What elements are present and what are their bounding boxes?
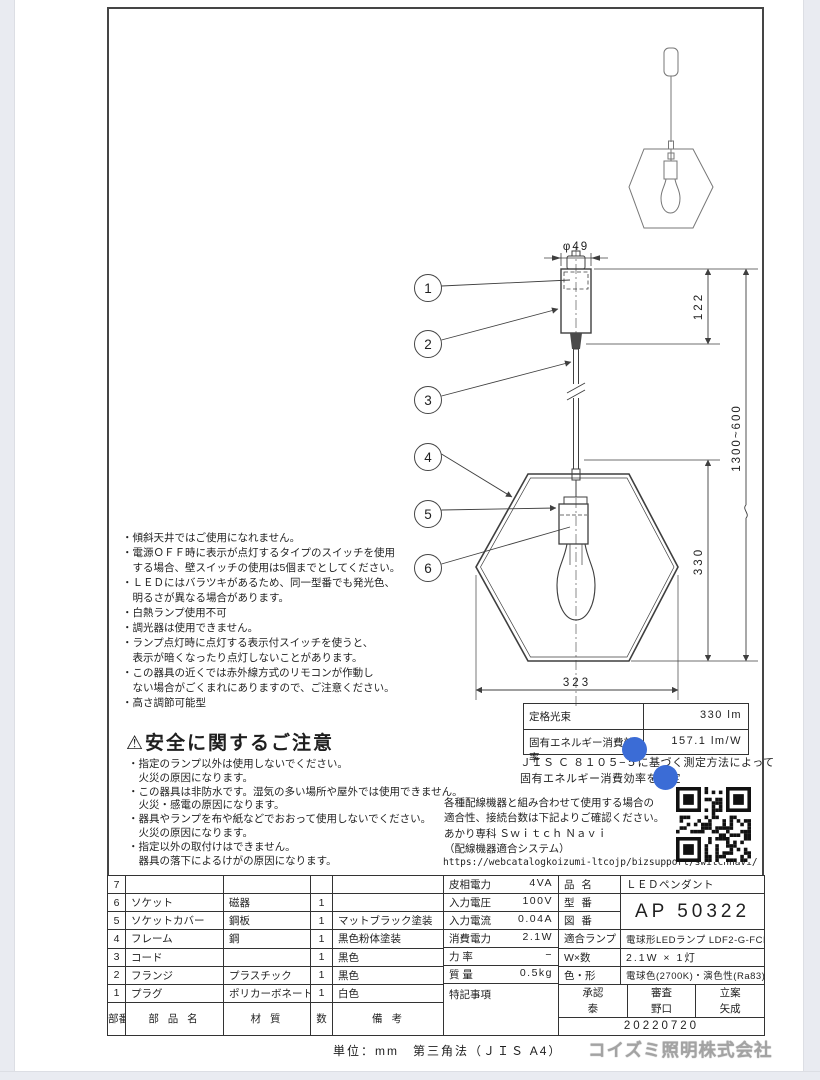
dim-1300-600-label: 1300~600 xyxy=(731,404,743,472)
table-row: 消費電力2.1W xyxy=(444,930,559,948)
note-line: ない場合がごくまれにありますので、ご注意ください。 xyxy=(122,681,400,696)
part-name xyxy=(126,876,224,894)
wiring-line: 各種配線機器と組み合わせて使用する場合の xyxy=(444,796,664,811)
apparent-power-value: 4VA xyxy=(529,877,553,892)
qr-code xyxy=(676,787,751,862)
callout-6: 6 xyxy=(424,561,432,576)
page-margin-left xyxy=(0,0,15,1080)
part-note: 黒色 xyxy=(333,966,445,984)
draft-col: 立案 矢成 xyxy=(695,985,764,1017)
table-row: 定格光束 330 lm xyxy=(524,704,748,729)
callout-2: 2 xyxy=(424,337,432,352)
table-row: 1 プラグ ポリカーボネート 1 白色 xyxy=(108,984,445,1002)
part-name: ソケット xyxy=(126,894,224,912)
part-name: コード xyxy=(126,948,224,966)
part-qty: 1 xyxy=(311,894,333,912)
part-material: ポリカーボネート xyxy=(224,984,311,1002)
warning-icon: ⚠ xyxy=(126,733,145,754)
approval-block: 承認 泰 審査 野口 立案 矢成 xyxy=(559,985,764,1017)
safety-line: 火災の原因になります。 xyxy=(128,772,463,786)
input-voltage-value: 100V xyxy=(522,895,553,910)
dim-phi49-label: φ49 xyxy=(563,241,589,253)
safety-line: ・この器具は非防水です。湿気の多い場所や屋外では使用できません。 xyxy=(128,786,463,800)
part-no: 1 xyxy=(108,984,126,1002)
safety-line: 器具の落下によるけがの原因になります。 xyxy=(128,855,463,869)
note-line: 明るさが異なる場合があります。 xyxy=(122,591,400,606)
table-row: 品 名 ＬＥＤペンダント xyxy=(559,876,765,894)
dim-122-label: 122 xyxy=(693,292,705,320)
electrical-spec-table: 皮相電力4VA 入力電圧100V 入力電流0.04A 消費電力2.1W 力 率−… xyxy=(443,875,559,1036)
part-no: 7 xyxy=(108,876,126,894)
part-no: 5 xyxy=(108,912,126,930)
part-material: プラスチック xyxy=(224,966,311,984)
jis-note-line2: 固有エネルギー消費効率を測定 xyxy=(520,772,775,788)
mass-value: 0.5kg xyxy=(520,967,553,982)
power-factor-value: − xyxy=(545,949,553,964)
usage-notes: ・傾斜天井ではご使用になれません。 ・電源ＯＦＦ時に表示が点灯するタイプのスイッ… xyxy=(122,531,400,711)
wiring-line: あかり専科 Ｓｗｉｔｃｈ Ｎａｖｉ xyxy=(444,827,664,842)
safety-notes: ・指定のランプ以外は使用しないでください。 火災の原因になります。 ・この器具は… xyxy=(128,758,463,868)
dim-323-label: 323 xyxy=(563,677,591,689)
note-line: ・ＬＥＤにはバラツキがあるため、同一型番でも発光色、 xyxy=(122,576,400,591)
part-material xyxy=(224,876,311,894)
note-line: ・ランプ点灯時に点灯する表示付スイッチを使うと、 xyxy=(122,636,400,651)
table-row: 7 xyxy=(108,876,445,894)
product-name-value: ＬＥＤペンダント xyxy=(621,876,765,894)
power-factor-label: 力 率 xyxy=(449,949,473,964)
note-line: ・調光器は使用できません。 xyxy=(122,621,400,636)
drawing-no-label: 図 番 xyxy=(559,912,621,930)
spec-sheet-page: 1 2 3 4 5 6 φ49 122 1300~600 330 323 ・傾斜… xyxy=(0,0,820,1080)
part-note xyxy=(333,894,445,912)
lamp-label: 適合ランプ xyxy=(559,930,621,948)
model-label: 型 番 xyxy=(559,894,621,912)
table-row: 5 ソケットカバー 鋼板 1 マットブラック塗装 xyxy=(108,912,445,930)
review-role: 審査 xyxy=(651,985,672,1000)
lamp-value: 電球形LEDランプ LDF2-G-FCK xyxy=(621,930,765,948)
table-row: 4 フレーム 鋼 1 黒色粉体塗装 xyxy=(108,930,445,948)
power-consumption-label: 消費電力 xyxy=(449,931,491,946)
note-line: ・傾斜天井ではご使用になれません。 xyxy=(122,531,400,546)
input-voltage-label: 入力電圧 xyxy=(449,895,491,910)
input-current-label: 入力電流 xyxy=(449,913,491,928)
dim-330-label: 330 xyxy=(693,547,705,575)
draft-name: 矢成 xyxy=(720,1001,741,1016)
table-row: 6 ソケット 磁器 1 xyxy=(108,894,445,912)
pendant-dimension-drawing xyxy=(442,246,759,708)
safety-line: 火災の原因になります。 xyxy=(128,827,463,841)
table-row: 力 率− xyxy=(444,948,559,966)
approval-name: 泰 xyxy=(588,1001,599,1016)
apparent-power-label: 皮相電力 xyxy=(449,877,491,892)
table-row: W×数 2.1W × 1灯 xyxy=(559,948,765,966)
safety-section-title: ⚠安全に関するご注意 xyxy=(126,728,334,755)
callout-4: 4 xyxy=(424,450,432,465)
approval-col: 承認 泰 xyxy=(559,985,627,1017)
part-qty: 1 xyxy=(311,984,333,1002)
part-qty xyxy=(311,876,333,894)
table-row: 入力電流0.04A xyxy=(444,912,559,930)
part-no: 2 xyxy=(108,966,126,984)
note-line: ・高さ調節可能型 xyxy=(122,696,400,711)
wiring-compatibility-note: 各種配線機器と組み合わせて使用する場合の 適合性、接続台数は下記よりご確認くださ… xyxy=(444,796,664,858)
part-no: 4 xyxy=(108,930,126,948)
product-info-table: 品 名 ＬＥＤペンダント 型 番 AP 50322 図 番 適合ランプ 電球形L… xyxy=(558,875,765,1036)
jis-measurement-note: ＪＩＳ Ｃ ８１０５−５に基づく測定方法によって 固有エネルギー消費効率を測定 xyxy=(520,756,775,787)
header-material: 材 質 xyxy=(224,1002,311,1035)
review-name: 野口 xyxy=(651,1001,672,1016)
part-name: ソケットカバー xyxy=(126,912,224,930)
draft-role: 立案 xyxy=(720,985,741,1000)
part-note: 黒色粉体塗装 xyxy=(333,930,445,948)
header-part-name: 部 品 名 xyxy=(126,1002,224,1035)
wattage-value: 2.1W × 1灯 xyxy=(621,948,765,966)
wattage-label: W×数 xyxy=(559,948,621,966)
table-row: 色・形 電球色(2700K)・演色性(Ra83) xyxy=(559,966,765,984)
header-qty: 数 xyxy=(311,1002,333,1035)
part-material xyxy=(224,948,311,966)
safety-line: 火災・感電の原因になります。 xyxy=(128,799,463,813)
power-consumption-value: 2.1W xyxy=(522,931,553,946)
safety-line: ・指定以外の取付けはできません。 xyxy=(128,841,463,855)
release-date: 20220720 xyxy=(559,1017,765,1035)
callout-1: 1 xyxy=(424,281,432,296)
parts-table: 7 6 ソケット 磁器 1 5 ソケットカバー 鋼板 1 マットブラック塗装 4… xyxy=(107,875,445,1036)
part-name: フレーム xyxy=(126,930,224,948)
annotation-dot xyxy=(653,765,678,790)
jis-note-line1: ＪＩＳ Ｃ ８１０５−５に基づく測定方法によって xyxy=(520,756,775,772)
part-note: 白色 xyxy=(333,984,445,1002)
table-header-row: 部番 部 品 名 材 質 数 備 考 xyxy=(108,1002,445,1035)
note-line: ・電源ＯＦＦ時に表示が点灯するタイプのスイッチを使用 xyxy=(122,546,400,561)
table-row: 3 コード 1 黒色 xyxy=(108,948,445,966)
part-no: 3 xyxy=(108,948,126,966)
part-qty: 1 xyxy=(311,912,333,930)
safety-title-text: 安全に関するご注意 xyxy=(145,733,334,754)
table-row: 型 番 AP 50322 xyxy=(559,894,765,912)
luminous-flux-value: 330 lm xyxy=(644,704,748,729)
input-current-value: 0.04A xyxy=(518,913,553,928)
table-row: 適合ランプ 電球形LEDランプ LDF2-G-FCK xyxy=(559,930,765,948)
color-value: 電球色(2700K)・演色性(Ra83) xyxy=(621,966,765,984)
wiring-line: 適合性、接続台数は下記よりご確認ください。 xyxy=(444,811,664,826)
safety-line: ・指定のランプ以外は使用しないでください。 xyxy=(128,758,463,772)
callout-balloons: 1 2 3 4 5 6 xyxy=(415,275,442,582)
color-label: 色・形 xyxy=(559,966,621,984)
annotation-dot xyxy=(622,737,647,762)
part-note: 黒色 xyxy=(333,948,445,966)
part-qty: 1 xyxy=(311,930,333,948)
table-row: 特記事項 xyxy=(444,984,559,1036)
table-row: 質 量0.5kg xyxy=(444,966,559,984)
part-note: マットブラック塗装 xyxy=(333,912,445,930)
wiring-line: （配線機器適合システム） xyxy=(444,842,664,857)
mass-label: 質 量 xyxy=(449,967,473,982)
table-row: 20220720 xyxy=(559,1017,765,1035)
company-logo: コイズミ照明株式会社 xyxy=(588,1037,772,1062)
part-qty: 1 xyxy=(311,966,333,984)
efficacy-value: 157.1 lm/W xyxy=(644,730,748,754)
footer-units-projection: 単位：mm 第三角法（ＪＩＳ A4） xyxy=(333,1042,562,1059)
part-material: 鋼板 xyxy=(224,912,311,930)
approval-col: 審査 野口 xyxy=(627,985,696,1017)
part-name: フランジ xyxy=(126,966,224,984)
callout-5: 5 xyxy=(424,507,432,522)
approval-role: 承認 xyxy=(582,985,603,1000)
model-number: AP 50322 xyxy=(621,894,765,930)
part-qty: 1 xyxy=(311,948,333,966)
note-line: する場合、壁スイッチの使用は5個までとしてください。 xyxy=(122,561,400,576)
table-row: 皮相電力4VA xyxy=(444,876,559,894)
units-label: 単位：mm xyxy=(333,1044,399,1058)
table-row: 承認 泰 審査 野口 立案 矢成 xyxy=(559,984,765,1017)
note-line: ・白熱ランプ使用不可 xyxy=(122,606,400,621)
note-line: 表示が暗くなったり点灯しないことがあります。 xyxy=(122,651,400,666)
part-name: プラグ xyxy=(126,984,224,1002)
table-row: 2 フランジ プラスチック 1 黒色 xyxy=(108,966,445,984)
pendant-thumbnail xyxy=(629,48,713,228)
part-note xyxy=(333,876,445,894)
product-name-label: 品 名 xyxy=(559,876,621,894)
note-line: ・この器具の近くでは赤外線方式のリモコンが作動し xyxy=(122,666,400,681)
part-material: 鋼 xyxy=(224,930,311,948)
page-margin-bottom xyxy=(0,1071,820,1080)
luminous-flux-label: 定格光束 xyxy=(524,704,644,729)
callout-3: 3 xyxy=(424,393,432,408)
projection-label: 第三角法（ＪＩＳ A4） xyxy=(413,1044,562,1058)
table-row: 入力電圧100V xyxy=(444,894,559,912)
part-material: 磁器 xyxy=(224,894,311,912)
header-part-no: 部番 xyxy=(108,1002,126,1035)
remarks-label: 特記事項 xyxy=(444,984,559,1036)
header-note: 備 考 xyxy=(333,1002,445,1035)
part-no: 6 xyxy=(108,894,126,912)
safety-line: ・器具やランプを布や紙などでおおって使用しないでください。 xyxy=(128,813,463,827)
page-margin-right xyxy=(803,0,820,1080)
